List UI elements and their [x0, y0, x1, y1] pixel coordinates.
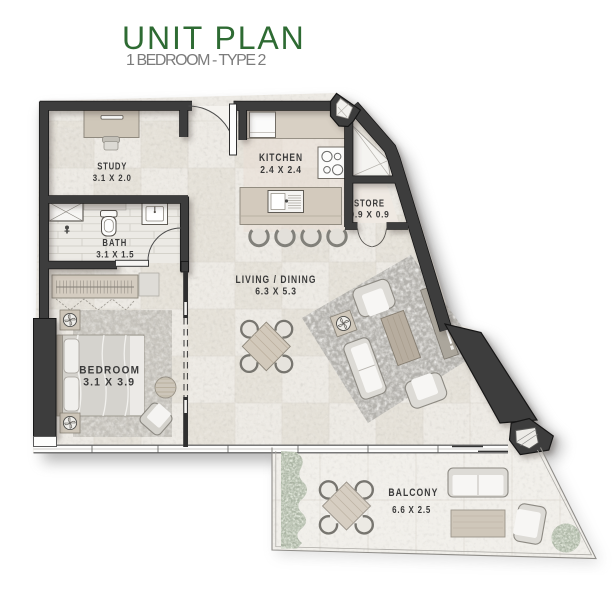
svg-text:2.4 X 2.4: 2.4 X 2.4: [260, 165, 302, 176]
svg-text:3.1 X 3.9: 3.1 X 3.9: [83, 376, 135, 388]
svg-text:BATH: BATH: [102, 238, 127, 249]
svg-text:STORE: STORE: [354, 198, 385, 209]
svg-text:0.9 X 0.9: 0.9 X 0.9: [350, 209, 390, 220]
svg-text:6.3 X 5.3: 6.3 X 5.3: [255, 286, 297, 297]
svg-text:LIVING / DINING: LIVING / DINING: [236, 274, 317, 286]
svg-text:KITCHEN: KITCHEN: [259, 152, 303, 164]
svg-text:3.1 X 2.0: 3.1 X 2.0: [93, 173, 132, 184]
svg-text:BALCONY: BALCONY: [388, 487, 438, 499]
svg-text:6.6 X 2.5: 6.6 X 2.5: [392, 505, 431, 516]
svg-text:BEDROOM: BEDROOM: [79, 365, 140, 377]
svg-text:3.1 X 1.5: 3.1 X 1.5: [96, 249, 134, 260]
svg-text:STUDY: STUDY: [97, 162, 127, 173]
